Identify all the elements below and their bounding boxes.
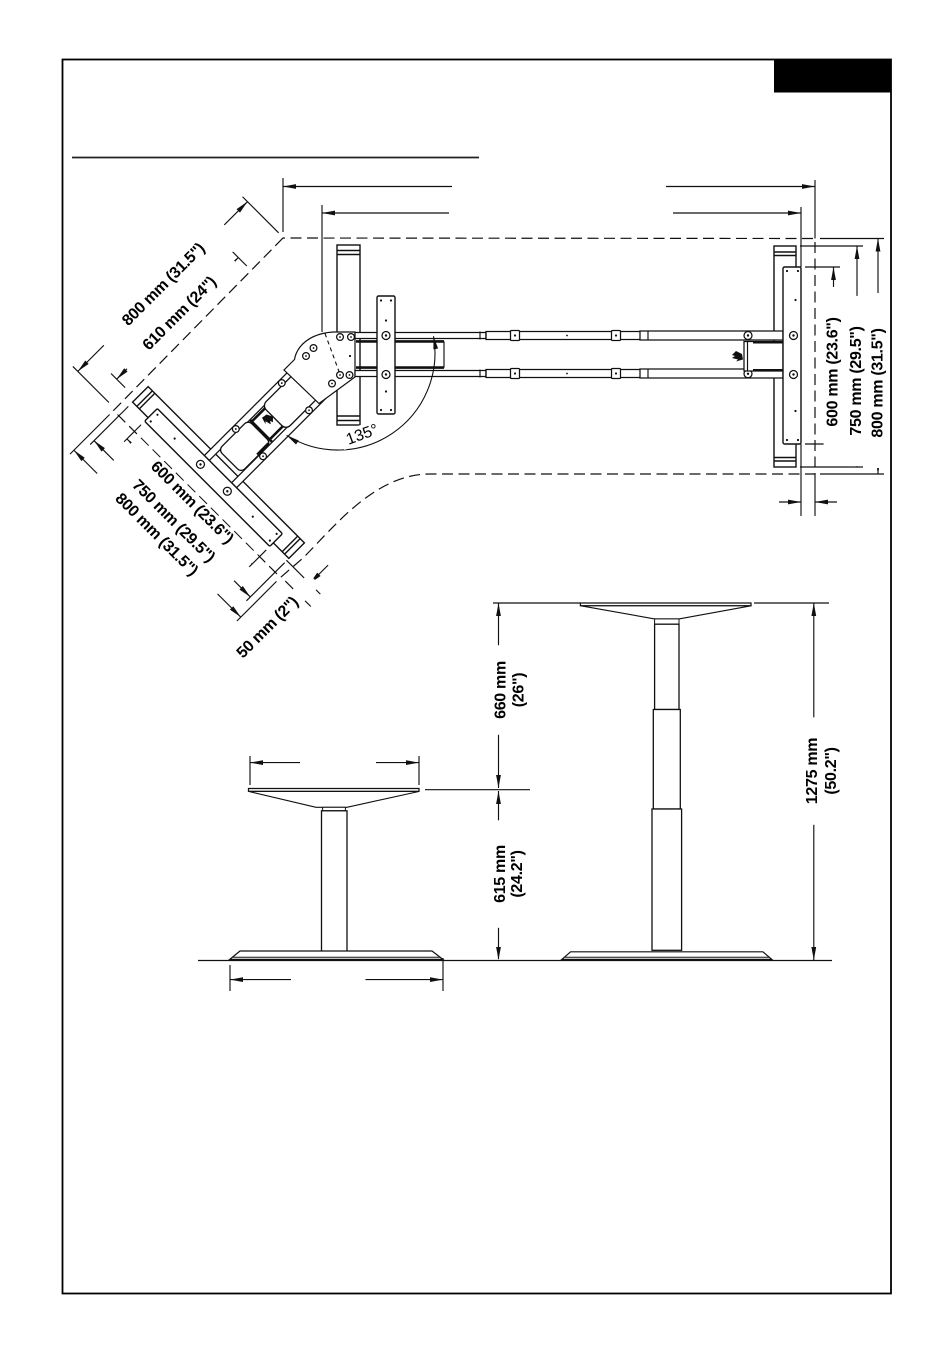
svg-text:615 mm: 615 mm (492, 845, 509, 903)
svg-text:(26"): (26") (511, 673, 528, 708)
svg-text:1275 mm: 1275 mm (804, 738, 821, 804)
svg-text:(50.2"): (50.2") (823, 747, 840, 794)
svg-text:660 mm: 660 mm (493, 661, 510, 719)
svg-text:600 mm (23.6"): 600 mm (23.6") (825, 317, 842, 426)
svg-text:750 mm (29.5"): 750 mm (29.5") (848, 326, 865, 435)
svg-text:(24.2"): (24.2") (509, 850, 526, 897)
svg-text:800 mm (31.5"): 800 mm (31.5") (870, 328, 887, 437)
